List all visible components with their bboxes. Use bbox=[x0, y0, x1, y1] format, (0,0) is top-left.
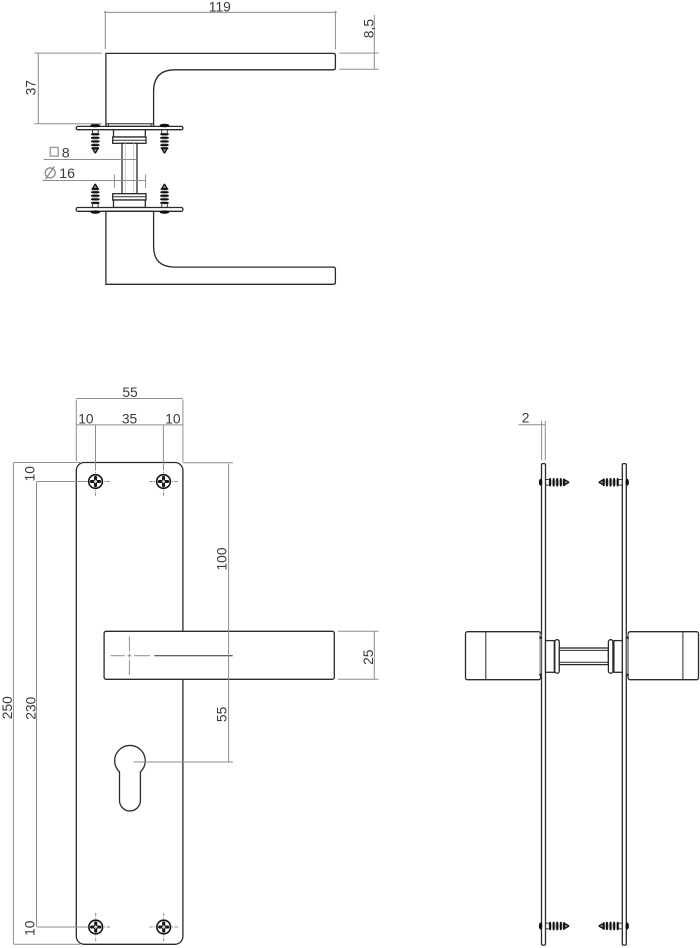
svg-text:8,5: 8,5 bbox=[362, 19, 377, 39]
svg-text:2: 2 bbox=[522, 411, 530, 426]
svg-text:119: 119 bbox=[209, 0, 231, 14]
svg-text:100: 100 bbox=[214, 547, 229, 570]
svg-text:37: 37 bbox=[23, 80, 38, 95]
svg-text:16: 16 bbox=[59, 166, 75, 182]
svg-text:230: 230 bbox=[23, 696, 38, 719]
svg-text:10: 10 bbox=[23, 466, 38, 482]
svg-text:55: 55 bbox=[214, 706, 229, 722]
svg-text:10: 10 bbox=[78, 412, 94, 427]
svg-text:10: 10 bbox=[23, 920, 38, 936]
svg-text:35: 35 bbox=[122, 412, 138, 427]
svg-text:55: 55 bbox=[122, 385, 138, 400]
svg-text:250: 250 bbox=[0, 696, 15, 719]
svg-text:10: 10 bbox=[165, 412, 181, 427]
svg-text:25: 25 bbox=[361, 649, 376, 665]
